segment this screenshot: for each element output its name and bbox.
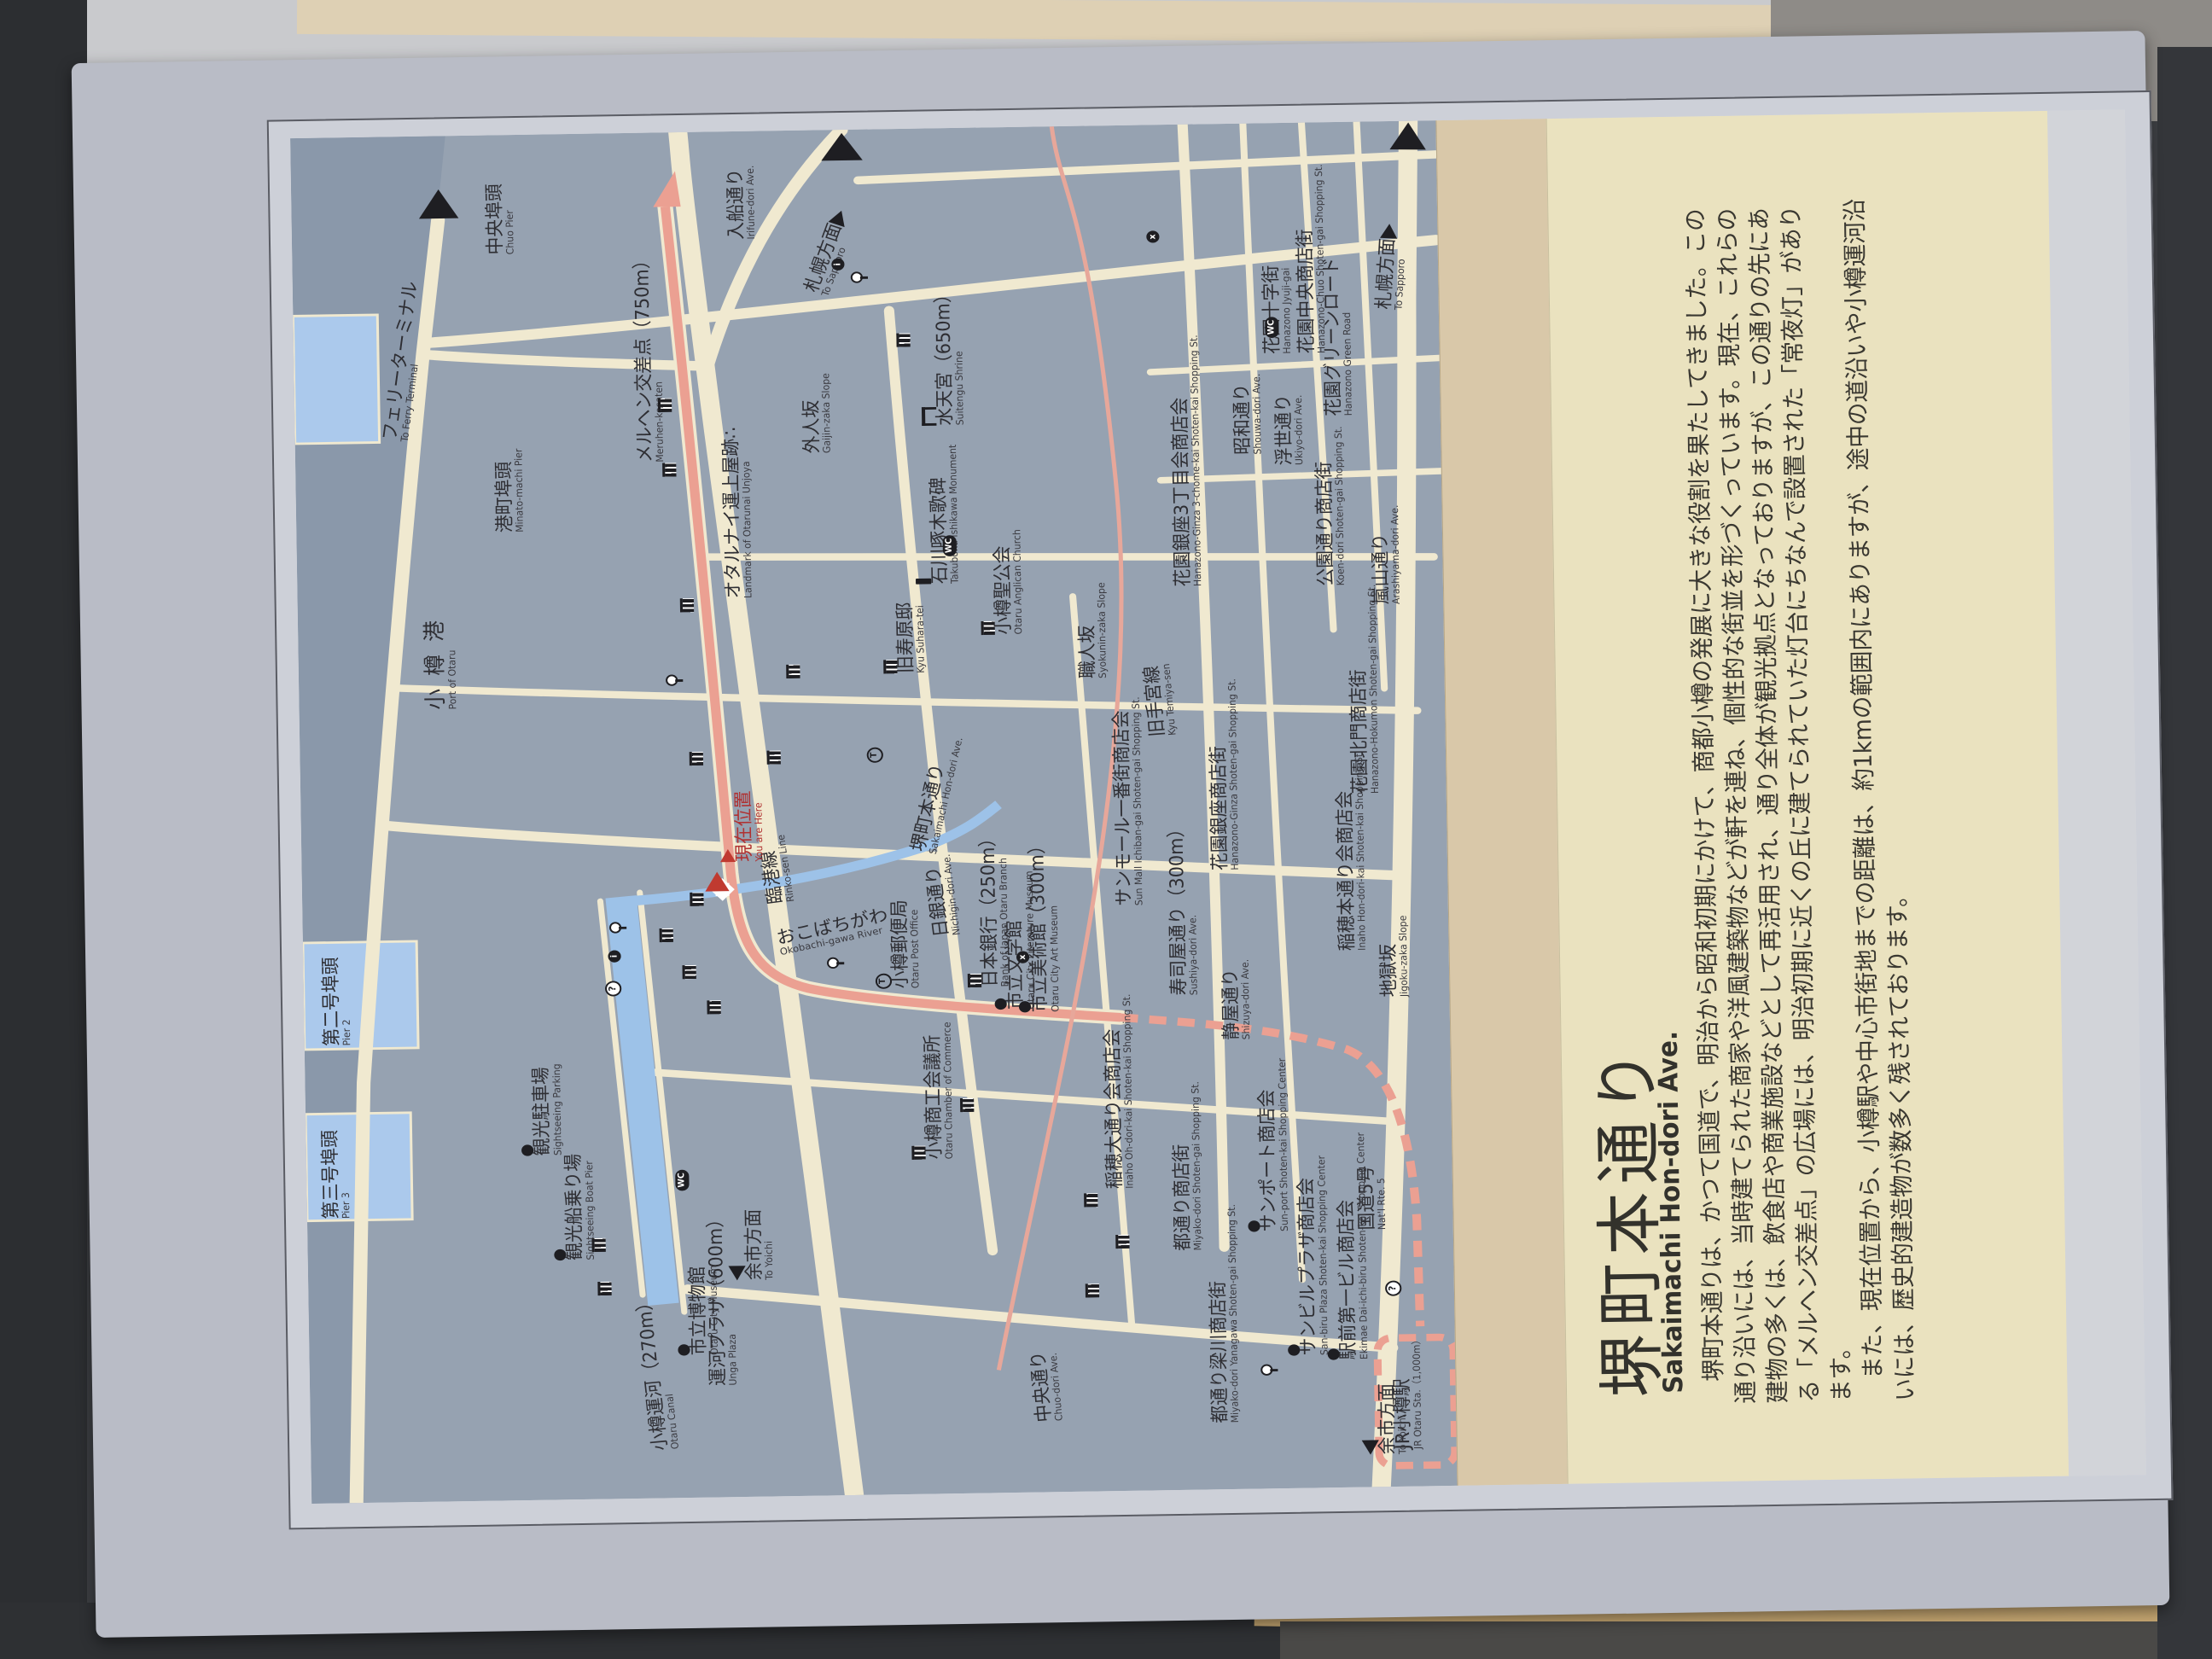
- map-label: 嵐山通りArashiyama-dori Ave.: [1371, 504, 1402, 604]
- map-label: 石川啄木歌碑Takuboku Ishikawa Monument: [914, 445, 961, 585]
- map-label: 中央埠頭Chuo Pier: [486, 183, 516, 255]
- map-label: 地獄坂Jigoku-zaka Slope: [1379, 916, 1410, 998]
- signboard-frame: 第三号埠頭Pier 3第二号埠頭Pier 2小 樽 港Port of Otaru…: [72, 31, 2170, 1638]
- map-label: 職人坂Syokunin-zaka Slope: [1078, 582, 1109, 678]
- map-label: サンモール一番街商店会Sun Mall Ichiban-gai Shoten-g…: [1112, 696, 1144, 905]
- map-label: オタルナイ運上屋跡∴Landmark of Otarunai Unjoya: [722, 427, 754, 598]
- map-label: フェリーターミナルTo Ferry Terminal: [381, 281, 432, 443]
- map-label: 札幌方面To Sapporo: [1375, 220, 1410, 311]
- map-label: 小樽聖公会Otaru Anglican Church: [979, 529, 1024, 635]
- map-label: 静屋通りShizuya-dori Ave.: [1221, 959, 1252, 1040]
- map-label: 稲穂大通り会商店会Inaho Oh-dori-kai Shoten-kai Sh…: [1103, 993, 1136, 1189]
- map-label: 観光駐車場Sightseeing Parking: [518, 1063, 563, 1156]
- map-label: 花園銀座3丁目会商店会Hanazono-Ginza 3-chome-kai Sh…: [1170, 335, 1203, 586]
- map-label: 現在位置You are Here: [719, 790, 765, 862]
- map-label: 外人坂Gaijin-zaka Slope: [802, 373, 833, 453]
- bus-icon: [851, 271, 863, 282]
- wc-icon: WC: [943, 535, 958, 556]
- map-label: 小 樽 港Port of Otaru: [423, 617, 457, 710]
- map-label: 第三号埠頭Pier 3: [322, 1130, 352, 1220]
- right-arrow-icon: [829, 208, 850, 227]
- bldg-icon: [658, 399, 672, 412]
- map-label: 都通り梁川商店街Miyako-dori Yanagawa Shoten-gai …: [1208, 1204, 1241, 1423]
- map-label: 旧手宮線Kyu Temiya-sen: [1143, 663, 1179, 737]
- sheet-readable-content: 第三号埠頭Pier 3第二号埠頭Pier 2小 樽 港Port of Otaru…: [290, 109, 2146, 1504]
- bldg-icon: [707, 1000, 720, 1014]
- bus-icon: [609, 922, 621, 933]
- panel-paragraph-1: 堺町本通りは、かつて国道で、明治から昭和初期にかけて、商都小樽の発展に大きな役割…: [1679, 192, 1857, 1405]
- bus-icon: [666, 674, 678, 685]
- info-icon: i: [608, 950, 620, 962]
- bldg-icon: [1115, 1235, 1129, 1249]
- post-icon: T: [867, 748, 883, 763]
- bus-icon: [827, 958, 839, 969]
- bldg-icon: [662, 463, 676, 476]
- panel-body: 堺町本通りは、かつて国道で、明治から昭和初期にかけて、商都小樽の発展に大きな役割…: [1679, 190, 1921, 1404]
- map-label: メルヘン交差点（750m）Meruhen-kosaten: [633, 251, 666, 463]
- description-panel: 堺町本通り Sakaimachi Hon-dori Ave. 堺町本通りは、かつ…: [1546, 111, 2070, 1484]
- map-label: 日銀通りNichigin-dori Ave.: [923, 853, 963, 938]
- map-label: 運河プラザ（600m）Unga Plaza: [707, 1210, 739, 1386]
- info-icon: i: [831, 259, 844, 271]
- police-icon: x: [1146, 230, 1159, 242]
- map-label: 浮世通りUkiyo-dori Ave.: [1275, 394, 1306, 466]
- bldg-icon: [597, 1282, 611, 1295]
- map-label: 小樽商工会議所Otaru Chamber of Commerce: [909, 1022, 955, 1160]
- bldg-icon: [690, 752, 703, 765]
- bldg-icon: [680, 598, 694, 612]
- map-label: 港町埠頭Minato-machi Pier: [495, 448, 526, 533]
- map-label: T小樽郵便局Otaru Post Office: [874, 899, 921, 989]
- bldg-icon: [960, 1098, 974, 1112]
- map-label: 中央通りChuo-dori Ave.: [1029, 1349, 1065, 1423]
- bldg-icon: [690, 893, 703, 906]
- map-label: 観光船乗り場Sightseeing Boat Pier: [550, 1154, 596, 1261]
- bldg-icon: [896, 333, 910, 346]
- map-label: サンポート商店会Sun-port Shoten-kai Shopping Cen…: [1243, 1058, 1289, 1232]
- map-label: 昭和通りShouwa-dori Ave.: [1233, 374, 1264, 455]
- wc-icon: WC: [1265, 317, 1279, 338]
- bldg-icon: [1086, 1284, 1099, 1297]
- map-label: 余市方面To Yoichi: [1361, 1383, 1409, 1455]
- map-label: 駅前第一ビル商店会Ekimae Dai-ichi-biru Shoten-kai…: [1323, 1132, 1370, 1360]
- panel-subtitle: Sakaimachi Hon-dori Ave.: [1652, 1031, 1689, 1394]
- bldg-icon: [767, 750, 781, 764]
- bldg-icon: [682, 965, 696, 979]
- map-label: 花園十字街Hanazono Jyuji-gai: [1262, 265, 1293, 354]
- city-map: 第三号埠頭Pier 3第二号埠頭Pier 2小 樽 港Port of Otaru…: [290, 120, 1457, 1504]
- bus-icon: [1260, 1364, 1272, 1375]
- q-icon: ?: [605, 981, 621, 996]
- map-label: 公園通り商店街Koen-dori Shoten-gai Shopping St.: [1315, 426, 1347, 585]
- bldg-icon: [660, 928, 673, 942]
- bldg-icon: [1084, 1193, 1097, 1207]
- asphalt-ground: [1280, 1621, 2212, 1659]
- q-icon: ?: [1385, 1280, 1401, 1295]
- map-label: 小樽運河（270m）Otaru Canal: [635, 1291, 681, 1451]
- map-label: 水天宮（650m）Suitengu Shrine: [920, 285, 966, 426]
- photo-of-map-signboard: 第三号埠頭Pier 3第二号埠頭Pier 2小 樽 港Port of Otaru…: [0, 0, 2212, 1659]
- map-label: 都通り商店街Miyako-dori Shoten-gai Shopping St…: [1172, 1081, 1204, 1251]
- map-label: 札幌方面To Sapporo: [802, 205, 861, 298]
- map-label: 花園北門商店街Hanazono-Hokumon Shoten-gai Shopp…: [1348, 584, 1381, 794]
- map-label: 第二号埠頭Pier 2: [322, 957, 352, 1046]
- map-label: 寿司屋通り（300m）Sushiya-dori Ave.: [1167, 819, 1200, 995]
- wc-icon: WC: [675, 1169, 690, 1190]
- printed-sheet: 第三号埠頭Pier 3第二号埠頭Pier 2小 樽 港Port of Otaru…: [290, 109, 2146, 1504]
- map-label: 旧寿原邸Kyu Suhara-tei: [882, 602, 926, 673]
- map-label: 入船通りIrifune-dori Ave.: [726, 166, 757, 240]
- right-arrow-icon: [1380, 224, 1398, 239]
- map-label: 堺町本通りSakaimachi Hon-dori Ave.: [910, 733, 965, 855]
- map-label: 花園銀座商店街Hanazono-Ginza Shoten-gai Shoppin…: [1208, 678, 1241, 870]
- bldg-icon: [786, 665, 800, 678]
- map-labels: 第三号埠頭Pier 3第二号埠頭Pier 2小 樽 港Port of Otaru…: [290, 120, 1457, 1504]
- map-label: 花園グリーンロードHanazono Green Road: [1323, 257, 1354, 416]
- bldg-icon: [591, 1238, 605, 1252]
- map-label: 市立美術館（300m）Otaru City Art Museum: [1015, 836, 1061, 1013]
